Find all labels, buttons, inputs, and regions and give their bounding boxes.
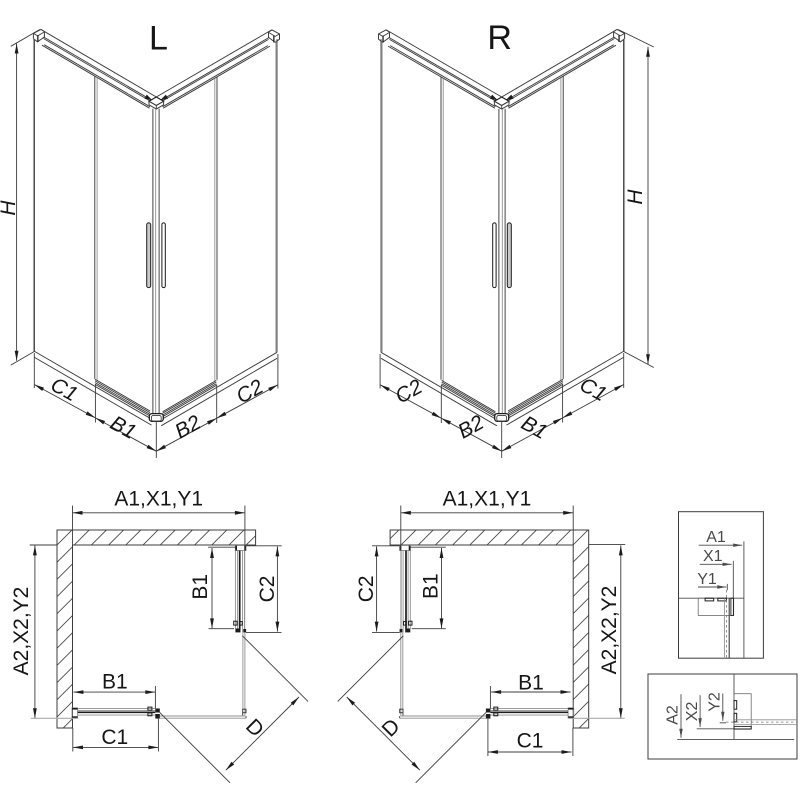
svg-text:H: H xyxy=(0,200,20,216)
svg-text:L: L xyxy=(149,19,168,57)
svg-text:Y2: Y2 xyxy=(707,692,724,712)
svg-text:A1,X1,Y1: A1,X1,Y1 xyxy=(114,487,203,510)
svg-text:A2,X2,Y2: A2,X2,Y2 xyxy=(10,587,33,676)
svg-text:B1: B1 xyxy=(518,671,544,694)
svg-text:B1: B1 xyxy=(102,670,128,693)
svg-text:X2: X2 xyxy=(684,702,701,722)
svg-text:C1: C1 xyxy=(101,726,128,749)
svg-text:C2: C2 xyxy=(355,575,378,602)
svg-text:R: R xyxy=(487,19,512,57)
svg-text:Y1: Y1 xyxy=(697,571,717,588)
svg-text:B1: B1 xyxy=(420,573,443,599)
svg-text:B1: B1 xyxy=(189,574,212,600)
svg-text:C1: C1 xyxy=(517,729,544,752)
svg-text:A1: A1 xyxy=(706,529,726,546)
svg-text:C2: C2 xyxy=(256,576,279,603)
svg-text:A1,X1,Y1: A1,X1,Y1 xyxy=(443,487,532,510)
svg-text:A2,X2,Y2: A2,X2,Y2 xyxy=(598,586,621,675)
svg-text:H: H xyxy=(624,189,647,205)
svg-text:A2: A2 xyxy=(664,705,681,725)
svg-text:X1: X1 xyxy=(703,548,723,565)
